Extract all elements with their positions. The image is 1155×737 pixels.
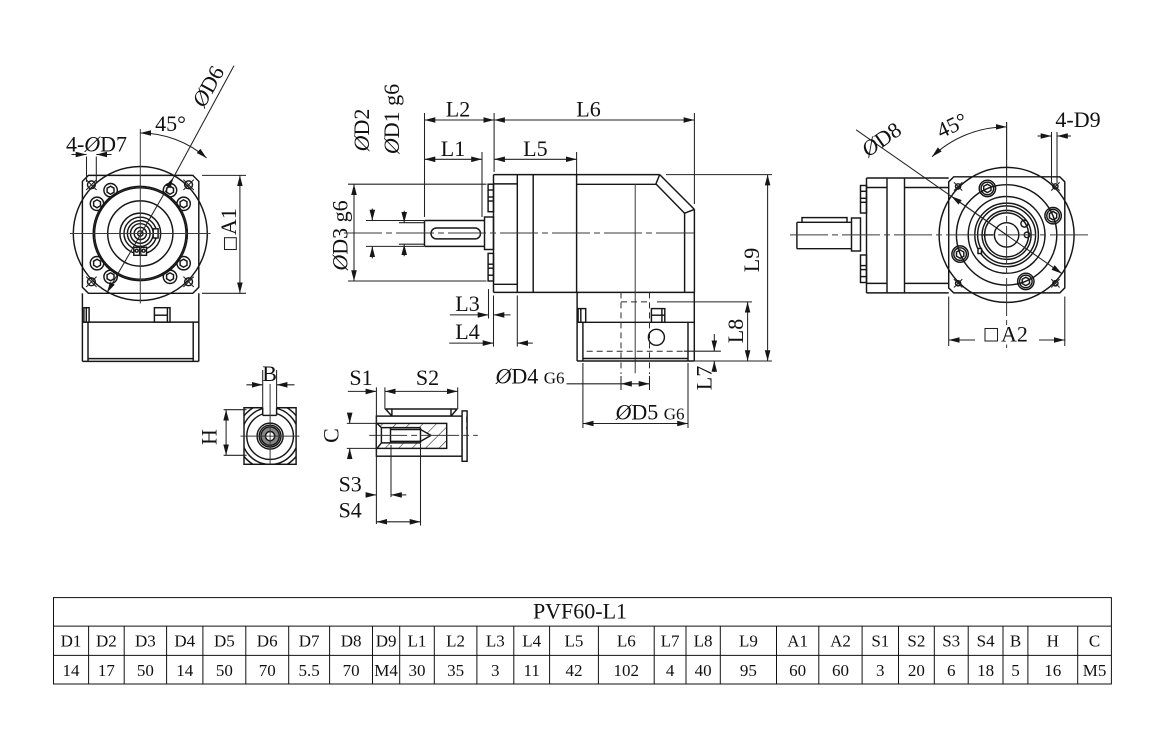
svg-text:20: 20 — [908, 661, 925, 680]
svg-text:L8: L8 — [694, 632, 713, 651]
svg-text:L3: L3 — [455, 291, 479, 316]
svg-text:PVF60-L1: PVF60-L1 — [533, 599, 627, 624]
svg-text:14: 14 — [176, 661, 194, 680]
svg-text:42: 42 — [566, 661, 583, 680]
svg-text:D5: D5 — [214, 632, 235, 651]
svg-text:4: 4 — [666, 661, 675, 680]
svg-text:A2: A2 — [830, 632, 851, 651]
svg-text:S1: S1 — [349, 365, 372, 390]
svg-text:L7: L7 — [661, 632, 680, 651]
svg-text:ØD3 g6: ØD3 g6 — [328, 200, 353, 271]
svg-text:D6: D6 — [257, 632, 278, 651]
svg-text:D9: D9 — [376, 632, 397, 651]
svg-text:102: 102 — [614, 661, 640, 680]
svg-text:L4: L4 — [522, 632, 541, 651]
svg-text:5: 5 — [1011, 661, 1020, 680]
svg-text:S1: S1 — [871, 632, 889, 651]
svg-text:16: 16 — [1044, 661, 1061, 680]
svg-text:70: 70 — [343, 661, 360, 680]
svg-text:50: 50 — [137, 661, 154, 680]
svg-text:60: 60 — [789, 661, 806, 680]
svg-text:M5: M5 — [1083, 661, 1107, 680]
svg-text:60: 60 — [832, 661, 849, 680]
svg-text:A1: A1 — [787, 632, 808, 651]
svg-text:L3: L3 — [486, 632, 505, 651]
svg-text:30: 30 — [409, 661, 426, 680]
svg-text:95: 95 — [740, 661, 757, 680]
svg-text:35: 35 — [447, 661, 464, 680]
svg-text:3: 3 — [876, 661, 885, 680]
svg-text:D7: D7 — [299, 632, 320, 651]
svg-text:M4: M4 — [374, 661, 398, 680]
svg-text:S3: S3 — [339, 472, 362, 497]
svg-text:A1: A1 — [216, 208, 241, 235]
svg-text:L4: L4 — [455, 319, 479, 344]
svg-text:L6: L6 — [617, 632, 636, 651]
svg-text:ØD1 g6: ØD1 g6 — [379, 84, 404, 155]
svg-text:L2: L2 — [446, 97, 470, 122]
svg-text:C: C — [319, 428, 344, 443]
svg-text:14: 14 — [63, 661, 81, 680]
svg-text:S2: S2 — [416, 365, 439, 390]
svg-text:D8: D8 — [341, 632, 362, 651]
svg-text:L2: L2 — [446, 632, 465, 651]
svg-text:B: B — [262, 361, 277, 386]
svg-text:D1: D1 — [61, 632, 82, 651]
svg-text:17: 17 — [98, 661, 116, 680]
svg-text:L7: L7 — [692, 366, 717, 390]
svg-text:S4: S4 — [977, 632, 995, 651]
svg-text:D3: D3 — [135, 632, 156, 651]
svg-text:11: 11 — [524, 661, 540, 680]
svg-text:L6: L6 — [576, 97, 600, 122]
svg-text:3: 3 — [491, 661, 500, 680]
svg-text:L9: L9 — [739, 632, 758, 651]
svg-text:D4: D4 — [174, 632, 195, 651]
svg-text:L1: L1 — [441, 136, 465, 161]
svg-text:4-D9: 4-D9 — [1055, 107, 1100, 132]
svg-text:B: B — [1010, 632, 1021, 651]
svg-text:S2: S2 — [907, 632, 925, 651]
svg-text:50: 50 — [216, 661, 233, 680]
svg-text:L1: L1 — [408, 632, 427, 651]
svg-text:70: 70 — [259, 661, 276, 680]
svg-text:H: H — [1047, 632, 1059, 651]
svg-text:H: H — [197, 429, 222, 445]
svg-text:40: 40 — [695, 661, 712, 680]
svg-text:C: C — [1089, 632, 1100, 651]
svg-text:S4: S4 — [339, 498, 362, 523]
svg-text:4-ØD7: 4-ØD7 — [66, 132, 127, 157]
svg-text:5.5: 5.5 — [298, 661, 319, 680]
svg-text:L5: L5 — [565, 632, 584, 651]
svg-text:S3: S3 — [942, 632, 960, 651]
svg-text:L8: L8 — [723, 319, 748, 343]
svg-text:L5: L5 — [523, 136, 547, 161]
svg-text:6: 6 — [947, 661, 956, 680]
svg-text:L9: L9 — [739, 248, 764, 272]
svg-text:45°: 45° — [155, 111, 186, 136]
svg-text:ØD2: ØD2 — [349, 109, 374, 153]
svg-text:A2: A2 — [1001, 322, 1028, 347]
svg-text:18: 18 — [977, 661, 994, 680]
svg-text:D2: D2 — [96, 632, 117, 651]
